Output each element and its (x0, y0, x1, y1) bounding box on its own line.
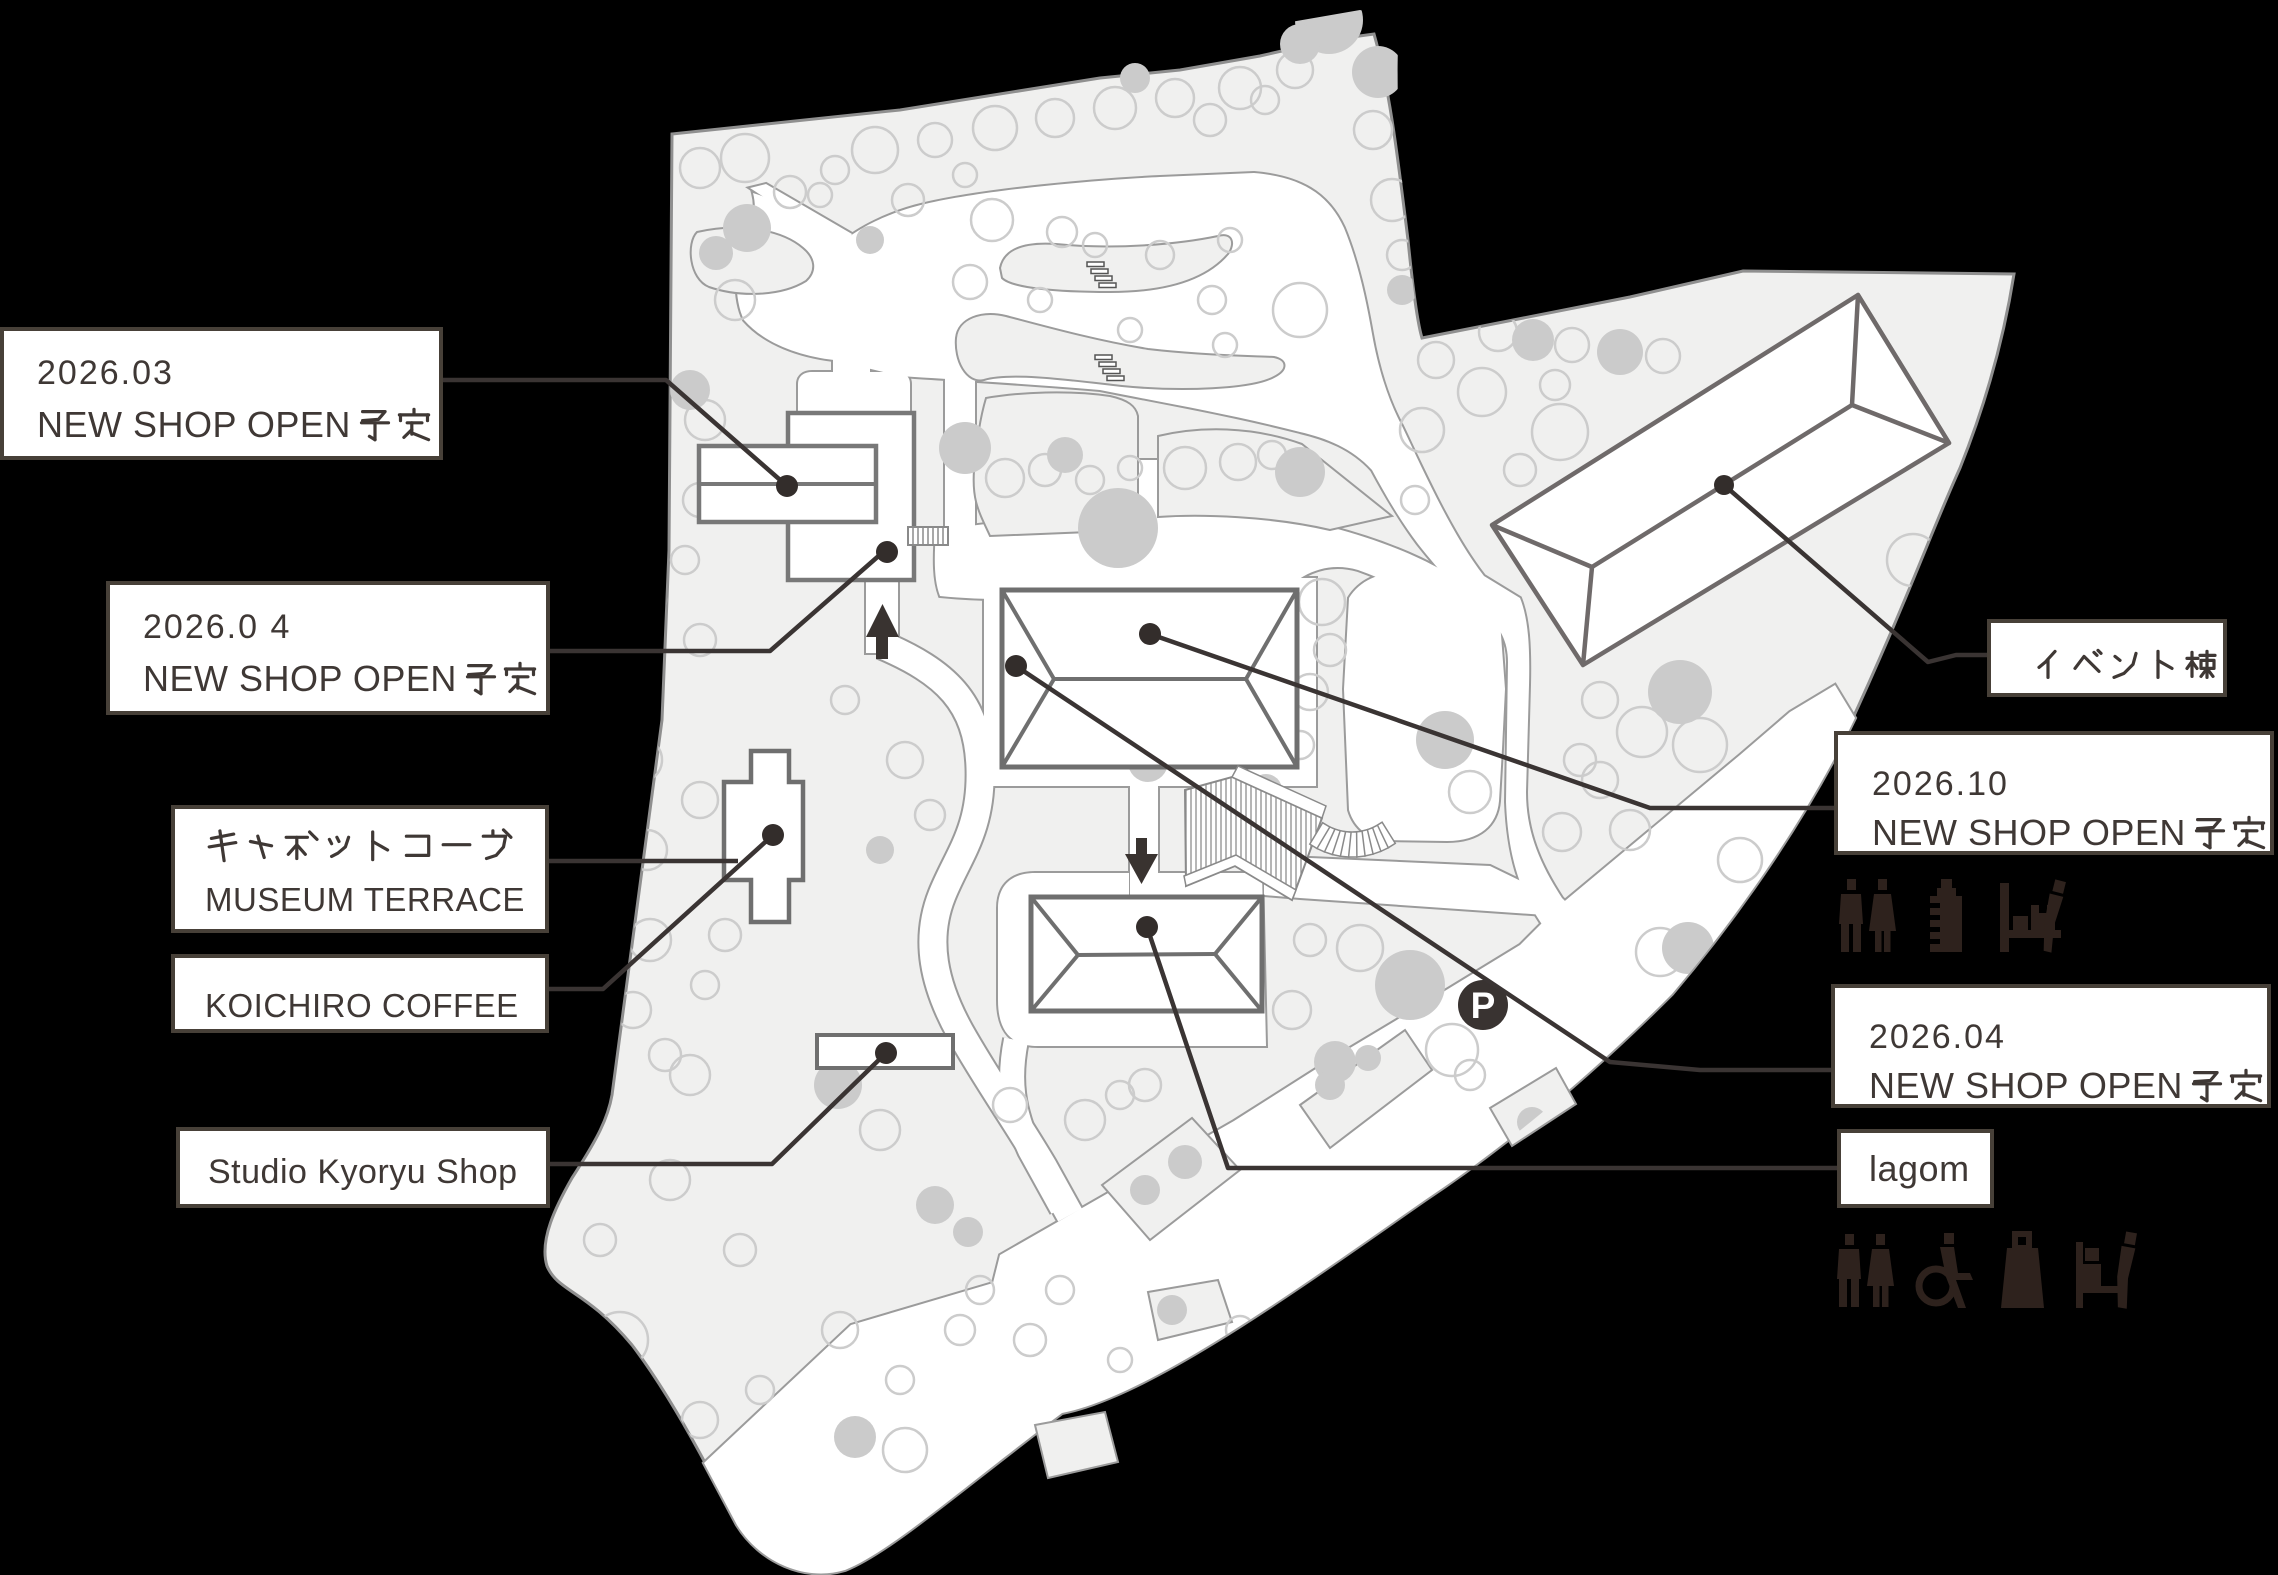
svg-text:NEW SHOP OPEN: NEW SHOP OPEN (37, 404, 351, 445)
svg-text:Studio Kyoryu Shop: Studio Kyoryu Shop (208, 1153, 518, 1191)
svg-text:lagom: lagom (1869, 1148, 1970, 1189)
svg-text:MUSEUM TERRACE: MUSEUM TERRACE (205, 881, 525, 918)
svg-text:NEW SHOP OPEN: NEW SHOP OPEN (1872, 812, 2186, 853)
svg-text:KOICHIRO COFFEE: KOICHIRO COFFEE (205, 987, 519, 1024)
svg-text:NEW SHOP OPEN: NEW SHOP OPEN (1869, 1065, 2183, 1106)
svg-text:P: P (1471, 985, 1496, 1026)
svg-text:NEW SHOP OPEN: NEW SHOP OPEN (143, 658, 457, 699)
svg-text:2026.04: 2026.04 (1869, 1018, 2006, 1056)
svg-text:2026.03: 2026.03 (37, 354, 174, 392)
svg-text:2026.10: 2026.10 (1872, 765, 2009, 803)
svg-text:2026.0 4: 2026.0 4 (143, 608, 291, 646)
